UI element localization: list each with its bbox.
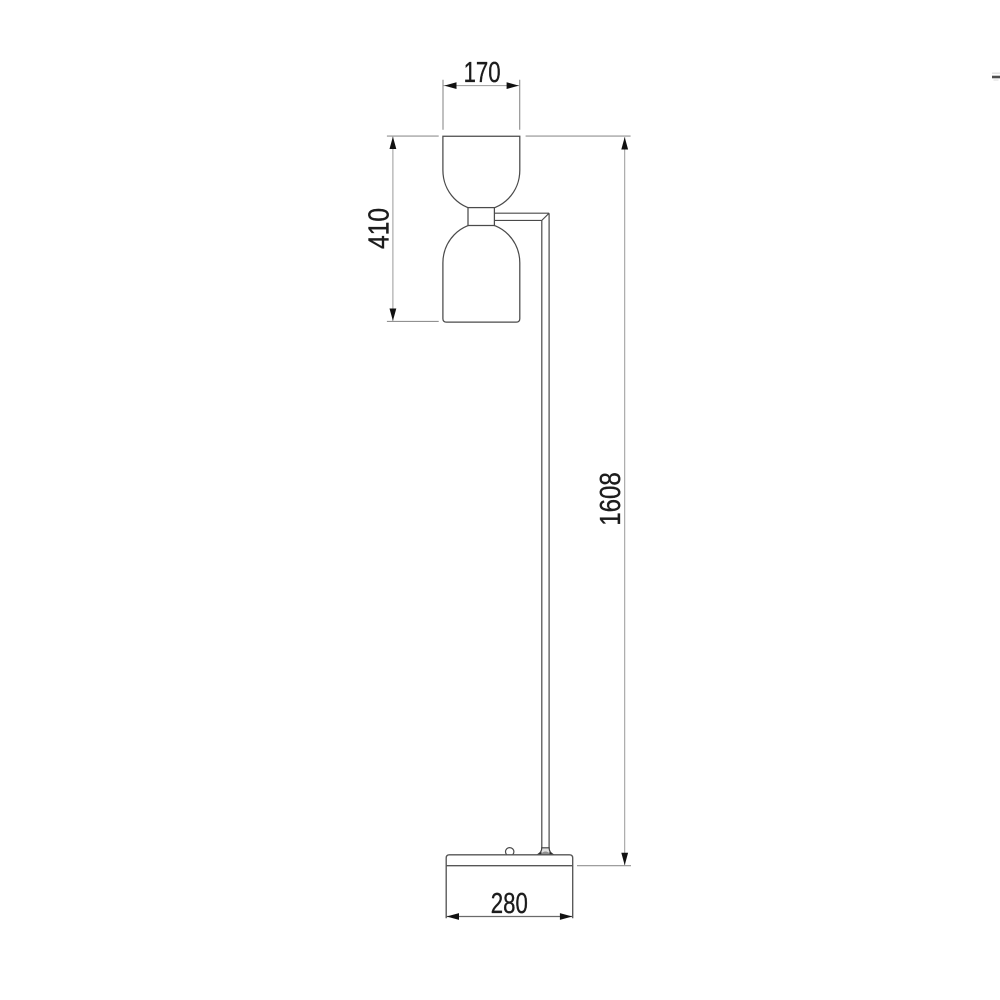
svg-text:280: 280 [491, 888, 528, 920]
svg-text:1608: 1608 [595, 472, 627, 526]
svg-text:170: 170 [464, 57, 501, 89]
svg-text:410: 410 [363, 208, 395, 249]
